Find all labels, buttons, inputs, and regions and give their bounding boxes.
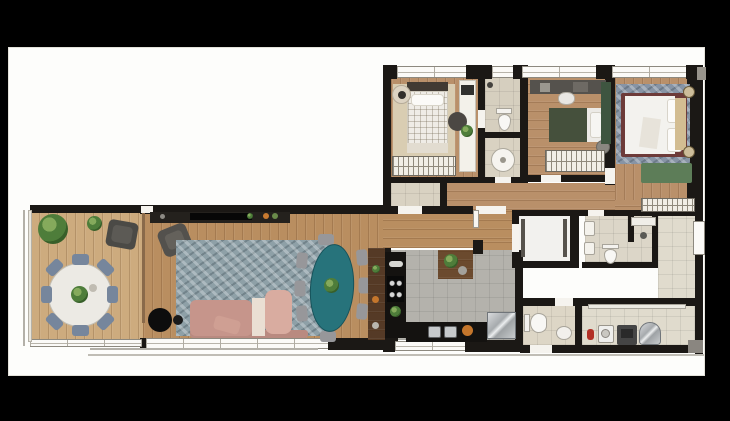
- service-shelf: [588, 304, 686, 309]
- wall-wc-vanity: [478, 132, 520, 138]
- wall-bed1-bath: [478, 78, 485, 178]
- wall-lavabo-service: [575, 306, 582, 345]
- kitchen-cooktop: [387, 276, 404, 302]
- wall-kitchen-right: [515, 250, 523, 346]
- dining-chair-s: [320, 331, 336, 342]
- dining-chair-nw: [296, 252, 308, 269]
- terrace-plant-large: [38, 214, 68, 244]
- railing-terrace-left: [28, 210, 32, 342]
- service-extinguisher: [587, 329, 594, 340]
- door-vanity: [495, 177, 511, 183]
- terrace-plant-small: [87, 216, 102, 231]
- wall-bed2-bottom: [528, 175, 605, 182]
- cabinet-deco-gray: [372, 322, 379, 329]
- door-hall-opening: [476, 206, 506, 214]
- window-bedroom-1: [397, 66, 466, 78]
- vanity-sink-drain: [500, 157, 506, 163]
- wall-master-bath-bottom: [582, 262, 658, 268]
- kitchen-bar-plant: [444, 254, 458, 268]
- master-wall-lamp-2: [683, 146, 695, 158]
- bedroom1-laptop: [461, 85, 474, 95]
- floor-bathroom-social: [391, 183, 440, 208]
- dining-centerpiece-plant: [324, 278, 339, 293]
- door-shower-wc: [478, 110, 485, 128]
- wc-shower-head: [487, 82, 493, 88]
- dining-chair-sw: [296, 305, 308, 322]
- master-bath-sink-1: [584, 221, 595, 236]
- kitchen-bar-bowl: [458, 266, 467, 275]
- door-bath-social: [398, 206, 422, 214]
- kitchen-counter-plant: [390, 306, 401, 317]
- railing-terrace-bottom: [30, 339, 142, 347]
- elevator-rail-right: [563, 219, 567, 257]
- dimension-line-left: [23, 210, 25, 346]
- console-deco-orange: [263, 213, 269, 219]
- terrace-centerpiece-plant: [71, 286, 88, 303]
- master-bath-drain: [640, 232, 647, 239]
- console-deco-gray: [160, 214, 165, 219]
- column-bottom-right: [688, 340, 703, 353]
- dimension-line-bottom-long: [88, 354, 704, 356]
- door-service: [555, 298, 573, 306]
- wall-kitchen-bottom-l: [383, 340, 395, 352]
- service-tank-steel: [639, 322, 661, 345]
- terrace-chair-s: [72, 325, 89, 336]
- bedroom1-pouf-center: [398, 91, 406, 99]
- window-kitchen: [395, 341, 465, 351]
- floorplan-scene: [0, 0, 730, 421]
- window-side-corridor: [693, 221, 705, 255]
- sofa-throw-white: [252, 298, 265, 336]
- column-top-right: [697, 67, 706, 80]
- door-leaf-hall: [473, 210, 479, 228]
- master-bath-shelf: [631, 217, 656, 226]
- lavabo-toilet-bowl: [530, 313, 547, 333]
- dining-chair-w: [295, 281, 306, 297]
- console-deco-green: [272, 213, 278, 219]
- kitchen-sink-right: [444, 326, 457, 338]
- window-bedroom-2: [522, 66, 596, 78]
- wall-kitchen-post: [473, 240, 483, 254]
- cabinet-deco-plant: [372, 265, 380, 273]
- terrace-armchair-cushion: [111, 224, 134, 244]
- cabinet-deco-orange: [372, 296, 379, 303]
- master-bench-green: [641, 163, 692, 183]
- bedroom1-blanket-fold: [407, 143, 448, 153]
- terrace-chair-n: [72, 254, 89, 265]
- wall-bed1-bottom: [383, 177, 478, 183]
- service-appliance-panel: [621, 329, 633, 338]
- elevator-rail-left: [521, 219, 525, 257]
- master-bench-beige: [675, 98, 686, 150]
- master-bath-sink-2: [584, 242, 595, 255]
- bedroom1-desk-plant: [461, 125, 473, 137]
- living-side-table: [148, 308, 172, 332]
- bedroom1-wardrobe: [392, 156, 456, 176]
- lavabo-sink: [556, 326, 572, 340]
- door-service-exterior: [530, 345, 552, 353]
- wall-top-2: [466, 65, 492, 79]
- dimension-line-bottom-inner: [90, 348, 318, 350]
- dining-chair-ne: [356, 249, 368, 266]
- master-wall-lamp-1: [683, 86, 695, 98]
- console-deco-plant: [247, 213, 253, 219]
- bedroom2-chair: [558, 92, 575, 105]
- wall-wing-left: [383, 65, 391, 213]
- kitchen-pot-orange: [462, 325, 473, 336]
- bedroom1-pillow: [411, 94, 444, 106]
- kitchen-appliance-steel: [487, 312, 516, 339]
- door-bedroom-2: [541, 175, 561, 182]
- window-bathroom: [492, 66, 513, 78]
- door-elevator: [512, 224, 519, 252]
- terrace-chair-e: [107, 286, 118, 303]
- wall-living-ne: [345, 205, 391, 214]
- door-master-bath: [588, 210, 604, 216]
- window-master: [612, 66, 686, 78]
- kitchen-sink-left: [428, 326, 441, 338]
- wall-elevator-top: [512, 210, 578, 216]
- bedroom1-headboard: [407, 82, 448, 91]
- terrace-table-deco: [89, 284, 97, 292]
- wall-bath-bed2: [520, 65, 528, 180]
- bedroom2-desk-tray: [573, 82, 588, 92]
- kitchen-faucet: [389, 261, 403, 267]
- bedroom2-wardrobe: [545, 150, 605, 172]
- terrace-chair-w: [41, 286, 52, 303]
- floorplan-layer: [0, 0, 730, 421]
- door-master: [605, 168, 615, 184]
- partition-terrace-living: [142, 213, 145, 323]
- tv-screen: [190, 213, 252, 220]
- bedroom2-duvet-green: [549, 108, 587, 142]
- wall-elevator-right: [570, 210, 579, 268]
- wall-terrace-top: [30, 205, 142, 213]
- service-washer-door: [601, 329, 610, 338]
- dining-chair-se: [356, 303, 368, 320]
- wall-hall-split: [440, 206, 473, 214]
- sofa-lounger: [265, 290, 292, 334]
- master-wardrobe: [641, 198, 695, 212]
- bedroom2-desk-frame: [540, 83, 550, 92]
- living-deco-ball: [173, 315, 183, 325]
- bedroom2-green-cabinet: [601, 82, 611, 144]
